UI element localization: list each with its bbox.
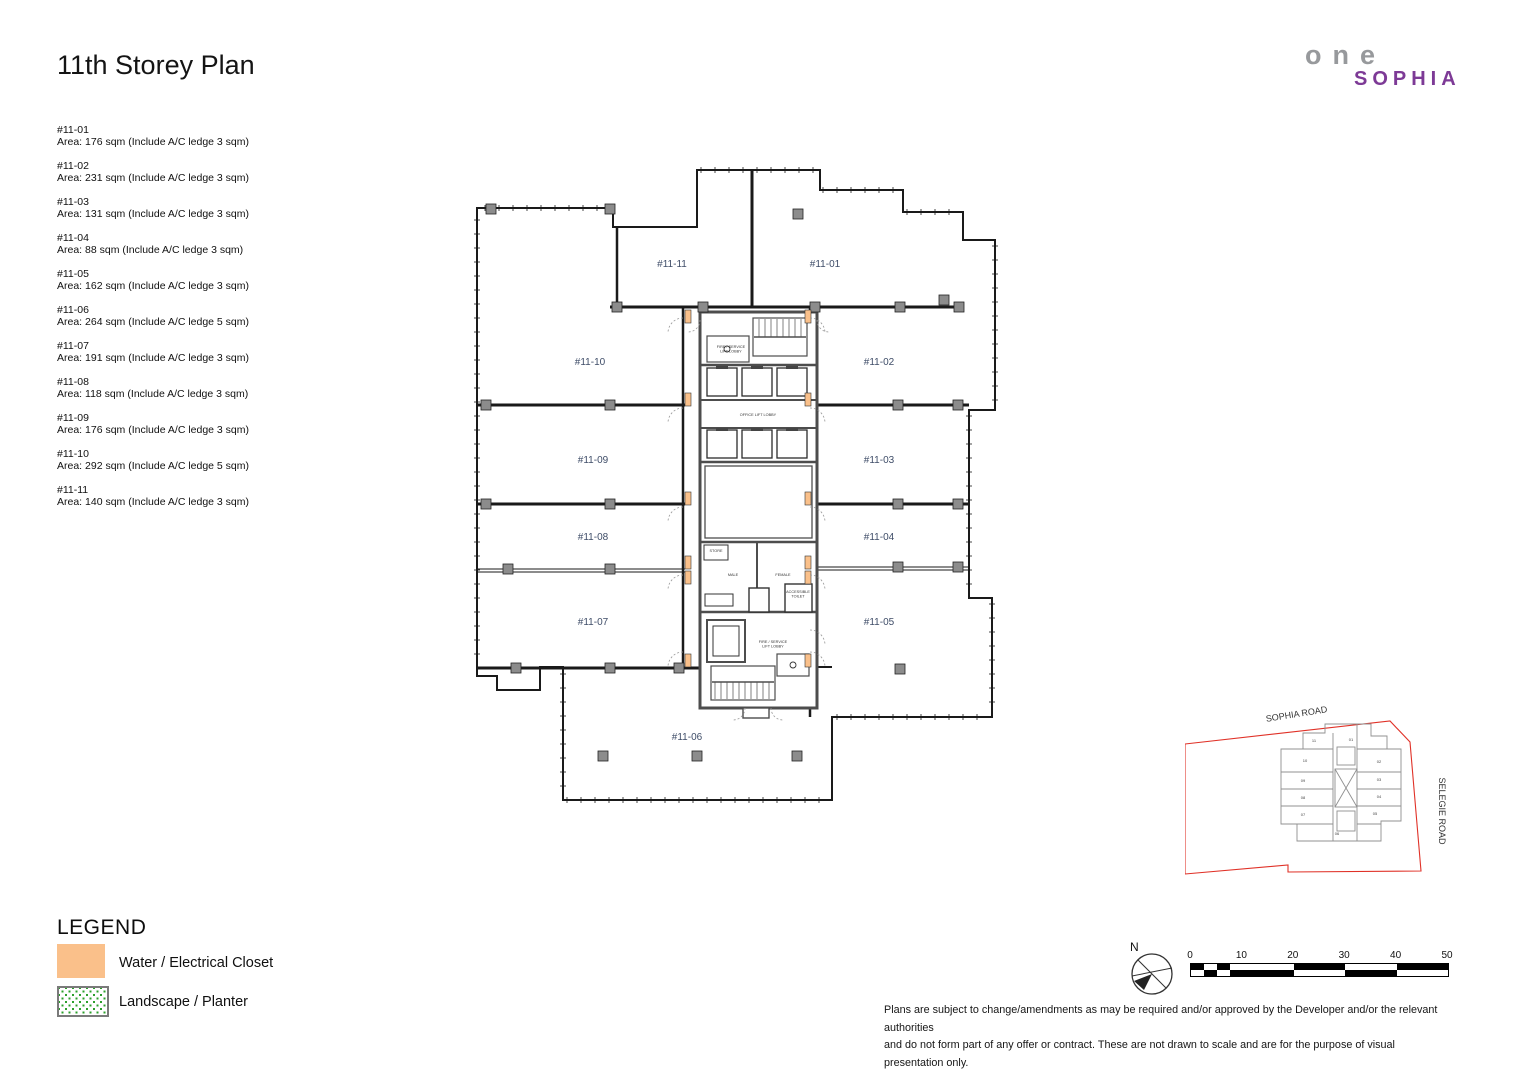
core-label: OFFICE LIFT LOBBY bbox=[740, 413, 777, 417]
legend: LEGEND Water / Electrical Closet Landsca… bbox=[57, 916, 377, 1017]
room-label: #11-02 bbox=[864, 357, 895, 368]
unit-entry: #11-09Area: 176 sqm (Include A/C ledge 3… bbox=[57, 412, 327, 436]
selegie-road-label: SELEGIE ROAD bbox=[1437, 777, 1447, 845]
floor-plan-drawing: #11-11#11-01#11-10#11-02#11-09#11-03#11-… bbox=[455, 160, 1015, 820]
column bbox=[605, 499, 615, 509]
page-title: 11th Storey Plan bbox=[57, 50, 255, 81]
unit-area: Area: 292 sqm (Include A/C ledge 5 sqm) bbox=[57, 460, 327, 472]
unit-area: Area: 176 sqm (Include A/C ledge 3 sqm) bbox=[57, 136, 327, 148]
column bbox=[893, 499, 903, 509]
minimap-unit-number: 04 bbox=[1377, 794, 1382, 799]
unit-entry: #11-02Area: 231 sqm (Include A/C ledge 3… bbox=[57, 160, 327, 184]
water-electrical-closet bbox=[805, 571, 811, 584]
water-electrical-closet bbox=[805, 393, 811, 406]
scale-number: 50 bbox=[1435, 950, 1459, 961]
unit-entry: #11-07Area: 191 sqm (Include A/C ledge 3… bbox=[57, 340, 327, 364]
legend-heading: LEGEND bbox=[57, 916, 377, 940]
column bbox=[692, 751, 702, 761]
unit-entry: #11-01Area: 176 sqm (Include A/C ledge 3… bbox=[57, 124, 327, 148]
minimap-unit-number: 11 bbox=[1312, 738, 1317, 743]
unit-entry: #11-06Area: 264 sqm (Include A/C ledge 5… bbox=[57, 304, 327, 328]
room-label: #11-11 bbox=[657, 259, 687, 270]
water-electrical-closet bbox=[805, 310, 811, 323]
unit-entry: #11-11Area: 140 sqm (Include A/C ledge 3… bbox=[57, 484, 327, 508]
room-label: #11-07 bbox=[578, 617, 609, 628]
column bbox=[605, 400, 615, 410]
column bbox=[954, 302, 964, 312]
scale-bar: 01020304050 bbox=[1180, 950, 1455, 986]
room-label: #11-09 bbox=[578, 455, 609, 466]
location-minimap: SOPHIA ROAD SELEGIE ROAD 110110020903080… bbox=[1185, 693, 1515, 898]
unit-id: #11-10 bbox=[57, 448, 327, 460]
column bbox=[953, 562, 963, 572]
unit-id: #11-07 bbox=[57, 340, 327, 352]
water-electrical-closet bbox=[805, 492, 811, 505]
unit-entry: #11-08Area: 118 sqm (Include A/C ledge 3… bbox=[57, 376, 327, 400]
column bbox=[605, 204, 615, 214]
sophia-road-label: SOPHIA ROAD bbox=[1265, 704, 1328, 724]
column bbox=[792, 751, 802, 761]
column bbox=[895, 302, 905, 312]
scale-number: 20 bbox=[1281, 950, 1305, 961]
scale-bar-blocks bbox=[1190, 963, 1449, 977]
minimap-unit-number: 06 bbox=[1335, 831, 1340, 836]
column bbox=[893, 400, 903, 410]
scale-number: 40 bbox=[1384, 950, 1408, 961]
unit-area: Area: 88 sqm (Include A/C ledge 3 sqm) bbox=[57, 244, 327, 256]
column bbox=[793, 209, 803, 219]
minimap-building bbox=[1281, 724, 1401, 841]
water-electrical-closet bbox=[805, 654, 811, 667]
disclaimer-line-1: Plans are subject to change/amendments a… bbox=[884, 1002, 1449, 1037]
landscape-planter-swatch bbox=[57, 986, 109, 1017]
minimap-unit-number: 03 bbox=[1377, 777, 1382, 782]
scale-number: 10 bbox=[1229, 950, 1253, 961]
unit-id: #11-08 bbox=[57, 376, 327, 388]
column bbox=[698, 302, 708, 312]
floor-plan: #11-11#11-01#11-10#11-02#11-09#11-03#11-… bbox=[455, 160, 1015, 820]
legend-label-water-electrical: Water / Electrical Closet bbox=[119, 955, 273, 971]
water-electrical-closet bbox=[685, 571, 691, 584]
column bbox=[605, 663, 615, 673]
water-electrical-closet-swatch bbox=[57, 944, 105, 978]
column bbox=[598, 751, 608, 761]
column bbox=[810, 302, 820, 312]
water-electrical-closet bbox=[685, 492, 691, 505]
column bbox=[612, 302, 622, 312]
unit-id: #11-11 bbox=[57, 484, 327, 496]
unit-id: #11-06 bbox=[57, 304, 327, 316]
unit-id: #11-02 bbox=[57, 160, 327, 172]
core-label: STORE bbox=[709, 549, 722, 553]
unit-entry: #11-03Area: 131 sqm (Include A/C ledge 3… bbox=[57, 196, 327, 220]
column bbox=[481, 400, 491, 410]
room-label: #11-10 bbox=[575, 357, 606, 368]
legend-label-landscape: Landscape / Planter bbox=[119, 994, 248, 1010]
minimap-unit-number: 02 bbox=[1377, 759, 1382, 764]
room-label: #11-08 bbox=[578, 532, 609, 543]
unit-id: #11-09 bbox=[57, 412, 327, 424]
core-services bbox=[700, 312, 817, 718]
unit-area: Area: 176 sqm (Include A/C ledge 3 sqm) bbox=[57, 424, 327, 436]
column bbox=[893, 562, 903, 572]
unit-area: Area: 131 sqm (Include A/C ledge 3 sqm) bbox=[57, 208, 327, 220]
column bbox=[953, 400, 963, 410]
unit-id: #11-01 bbox=[57, 124, 327, 136]
minimap-unit-number: 08 bbox=[1301, 795, 1306, 800]
unit-id: #11-05 bbox=[57, 268, 327, 280]
unit-area: Area: 118 sqm (Include A/C ledge 3 sqm) bbox=[57, 388, 327, 400]
column bbox=[511, 663, 521, 673]
column bbox=[939, 295, 949, 305]
column bbox=[953, 499, 963, 509]
minimap-unit-number: 07 bbox=[1301, 812, 1306, 817]
unit-id: #11-03 bbox=[57, 196, 327, 208]
unit-area: Area: 140 sqm (Include A/C ledge 3 sqm) bbox=[57, 496, 327, 508]
column bbox=[605, 564, 615, 574]
unit-area: Area: 231 sqm (Include A/C ledge 3 sqm) bbox=[57, 172, 327, 184]
column bbox=[674, 663, 684, 673]
scale-number: 30 bbox=[1332, 950, 1356, 961]
scale-number: 0 bbox=[1178, 950, 1202, 961]
column bbox=[481, 499, 491, 509]
unit-area: Area: 162 sqm (Include A/C ledge 3 sqm) bbox=[57, 280, 327, 292]
logo-one-text: one bbox=[1305, 42, 1500, 68]
unit-entry: #11-10Area: 292 sqm (Include A/C ledge 5… bbox=[57, 448, 327, 472]
core-label: FIRE / SERVICELIFT LOBBY bbox=[717, 345, 746, 354]
minimap-unit-number: 10 bbox=[1303, 758, 1308, 763]
logo-sophia-text: SOPHIA bbox=[1354, 68, 1500, 90]
column bbox=[503, 564, 513, 574]
water-electrical-closet bbox=[805, 556, 811, 569]
column bbox=[486, 204, 496, 214]
unit-area: Area: 264 sqm (Include A/C ledge 5 sqm) bbox=[57, 316, 327, 328]
north-label: N bbox=[1130, 940, 1139, 954]
column bbox=[895, 664, 905, 674]
core-label: MALE bbox=[728, 573, 739, 577]
water-electrical-closet bbox=[685, 393, 691, 406]
unit-entry: #11-05Area: 162 sqm (Include A/C ledge 3… bbox=[57, 268, 327, 292]
room-label: #11-01 bbox=[810, 259, 841, 270]
minimap-unit-number: 05 bbox=[1373, 811, 1378, 816]
water-electrical-closet bbox=[685, 310, 691, 323]
room-label: #11-04 bbox=[864, 532, 895, 543]
unit-id: #11-04 bbox=[57, 232, 327, 244]
minimap-unit-number: 09 bbox=[1301, 778, 1306, 783]
unit-area: Area: 191 sqm (Include A/C ledge 3 sqm) bbox=[57, 352, 327, 364]
water-electrical-closet bbox=[685, 556, 691, 569]
unit-area-list: #11-01Area: 176 sqm (Include A/C ledge 3… bbox=[57, 124, 327, 520]
room-label: #11-03 bbox=[864, 455, 895, 466]
one-sophia-logo: one SOPHIA bbox=[1305, 42, 1500, 90]
core-label: FEMALE bbox=[775, 573, 791, 577]
disclaimer: Plans are subject to change/amendments a… bbox=[884, 1002, 1449, 1072]
disclaimer-line-2: and do not form part of any offer or con… bbox=[884, 1037, 1449, 1072]
core-label: FIRE / SERVICELIFT LOBBY bbox=[759, 640, 788, 649]
room-label: #11-06 bbox=[672, 732, 703, 743]
water-electrical-closet bbox=[685, 654, 691, 667]
minimap-unit-number: 01 bbox=[1349, 737, 1354, 742]
room-label: #11-05 bbox=[864, 617, 895, 628]
unit-entry: #11-04Area: 88 sqm (Include A/C ledge 3 … bbox=[57, 232, 327, 256]
minimap-unit-numbers: 1101100209030804070506 bbox=[1301, 737, 1382, 836]
